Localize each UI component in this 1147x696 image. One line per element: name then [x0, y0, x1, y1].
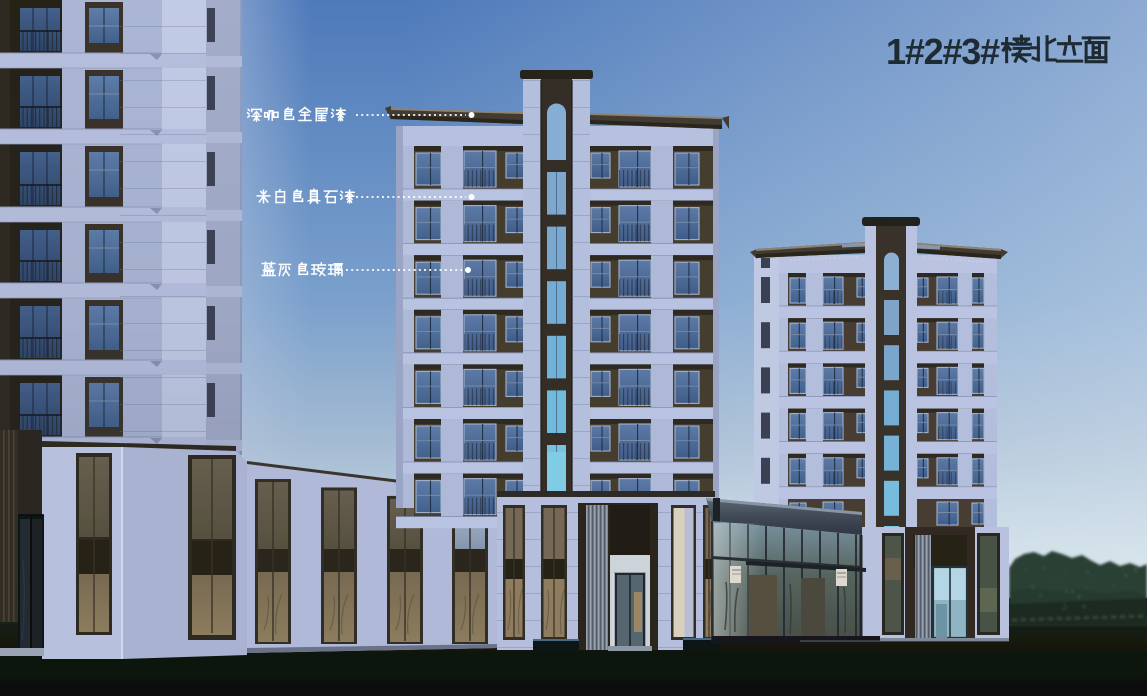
svg-text:1#2#3#: 1#2#3# — [886, 31, 1000, 72]
